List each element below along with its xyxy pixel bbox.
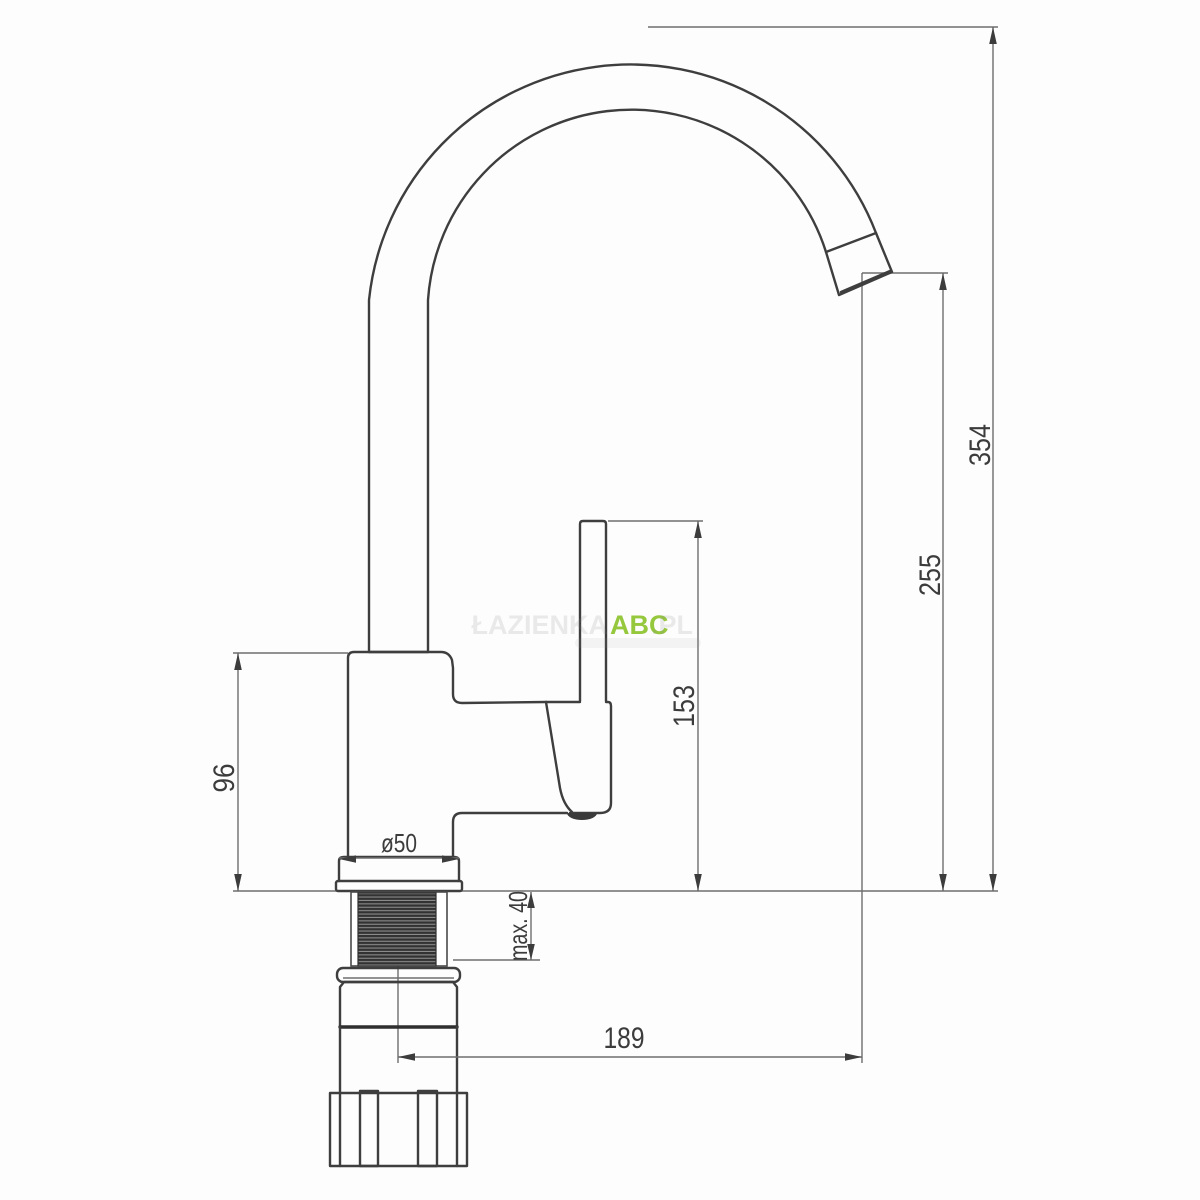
- watermark: ŁAZIENKA ABC .PL: [472, 610, 702, 648]
- dimension-153: 153: [668, 521, 702, 891]
- arrow-up-153: [694, 521, 702, 538]
- extension-lines: [233, 27, 998, 1063]
- handle-housing-slant: [546, 702, 572, 812]
- dimension-d50: ø50: [339, 828, 459, 863]
- arrow-up-96: [234, 653, 242, 670]
- watermark-suffix: .PL: [651, 610, 693, 640]
- arrow-down-255: [939, 874, 947, 891]
- dim-label-handle-top-height: 153: [668, 685, 701, 727]
- dimension-354: 354: [964, 27, 997, 891]
- ring-slot-right: [418, 1091, 437, 1166]
- dim-label-total-height: 354: [964, 424, 997, 466]
- dimension-189: 189: [398, 1022, 862, 1061]
- aerator-face: [841, 271, 890, 292]
- threaded-shank: [358, 893, 436, 966]
- arrow-up-354: [989, 27, 997, 44]
- dim-label-base-diameter: ø50: [381, 828, 417, 858]
- base-flange-upper: [339, 857, 459, 881]
- handle-joint-cap: [567, 813, 597, 820]
- dimension-max40: max. 40: [503, 891, 535, 961]
- arrow-up-255: [939, 273, 947, 290]
- arrow-down-96: [234, 874, 242, 891]
- watermark-prefix: ŁAZIENKA: [472, 610, 609, 640]
- ring-slot-left: [360, 1091, 378, 1166]
- spout-inner-curve: [428, 110, 826, 652]
- dim-label-spout-reach: 189: [604, 1022, 645, 1055]
- faucet-dimension-diagram: 354 255 153 96 ø50 max. 40 189: [0, 0, 1200, 1200]
- spout-aerator: [826, 233, 892, 295]
- arrow-right-189: [845, 1053, 862, 1061]
- castellated-ring: [330, 1093, 467, 1166]
- base-flange-plate: [336, 881, 462, 891]
- arrow-down-153: [694, 874, 702, 891]
- watermark-tagline-smudge: [575, 638, 701, 648]
- dim-label-spout-outlet-height: 255: [914, 554, 947, 596]
- dim-label-max-counter-thickness: max. 40: [503, 891, 533, 961]
- dimension-255: 255: [914, 273, 947, 891]
- arrow-left-189: [398, 1053, 415, 1061]
- dimension-96: 96: [208, 653, 242, 891]
- drawing-canvas: 354 255 153 96 ø50 max. 40 189: [0, 0, 1200, 1200]
- body-left-top: [348, 652, 546, 857]
- spout-outer-curve: [369, 64, 876, 652]
- body-right-bottom: [453, 813, 567, 857]
- arrow-down-354: [989, 874, 997, 891]
- dim-label-body-height: 96: [208, 764, 241, 793]
